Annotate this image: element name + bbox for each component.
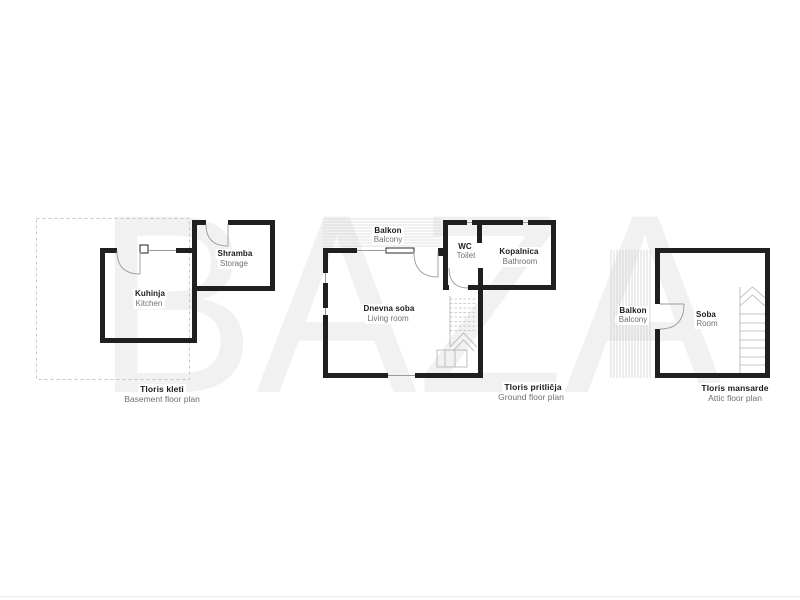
room-label-kopalnica: Kopalnica (497, 247, 540, 257)
chimney-pillar (140, 245, 148, 253)
room-label-kuhinja: Kuhinja (133, 289, 167, 299)
room-label-balcony-ground: Balcony (372, 235, 404, 245)
room-label-room: Room (694, 319, 719, 329)
room-label-balcony-attic: Balcony (617, 315, 649, 325)
floor-plan-drawing: BAZA (0, 0, 800, 600)
room-label-storage: Storage (218, 259, 250, 269)
room-label-bathroom: Bathroom (501, 257, 540, 267)
room-label-dnevna-soba: Dnevna soba (362, 304, 417, 314)
room-label-shramba: Shramba (216, 249, 255, 259)
attic-stairs (740, 287, 765, 373)
living-room-french-window (386, 248, 414, 253)
room-label-kitchen: Kitchen (134, 299, 165, 309)
bottom-rule (0, 596, 800, 597)
caption-ground-sl: Tloris pritličja (502, 382, 563, 392)
caption-basement-sl: Tloris kleti (138, 384, 186, 394)
caption-ground-en: Ground floor plan (496, 392, 566, 402)
room-label-toilet: Toilet (455, 251, 478, 261)
caption-basement-en: Basement floor plan (122, 394, 202, 404)
caption-attic-sl: Tloris mansarde (699, 383, 770, 393)
room-label-living-room: Living room (365, 314, 410, 324)
floor-plans-page: BAZA (0, 0, 800, 600)
caption-attic-en: Attic floor plan (706, 393, 764, 403)
